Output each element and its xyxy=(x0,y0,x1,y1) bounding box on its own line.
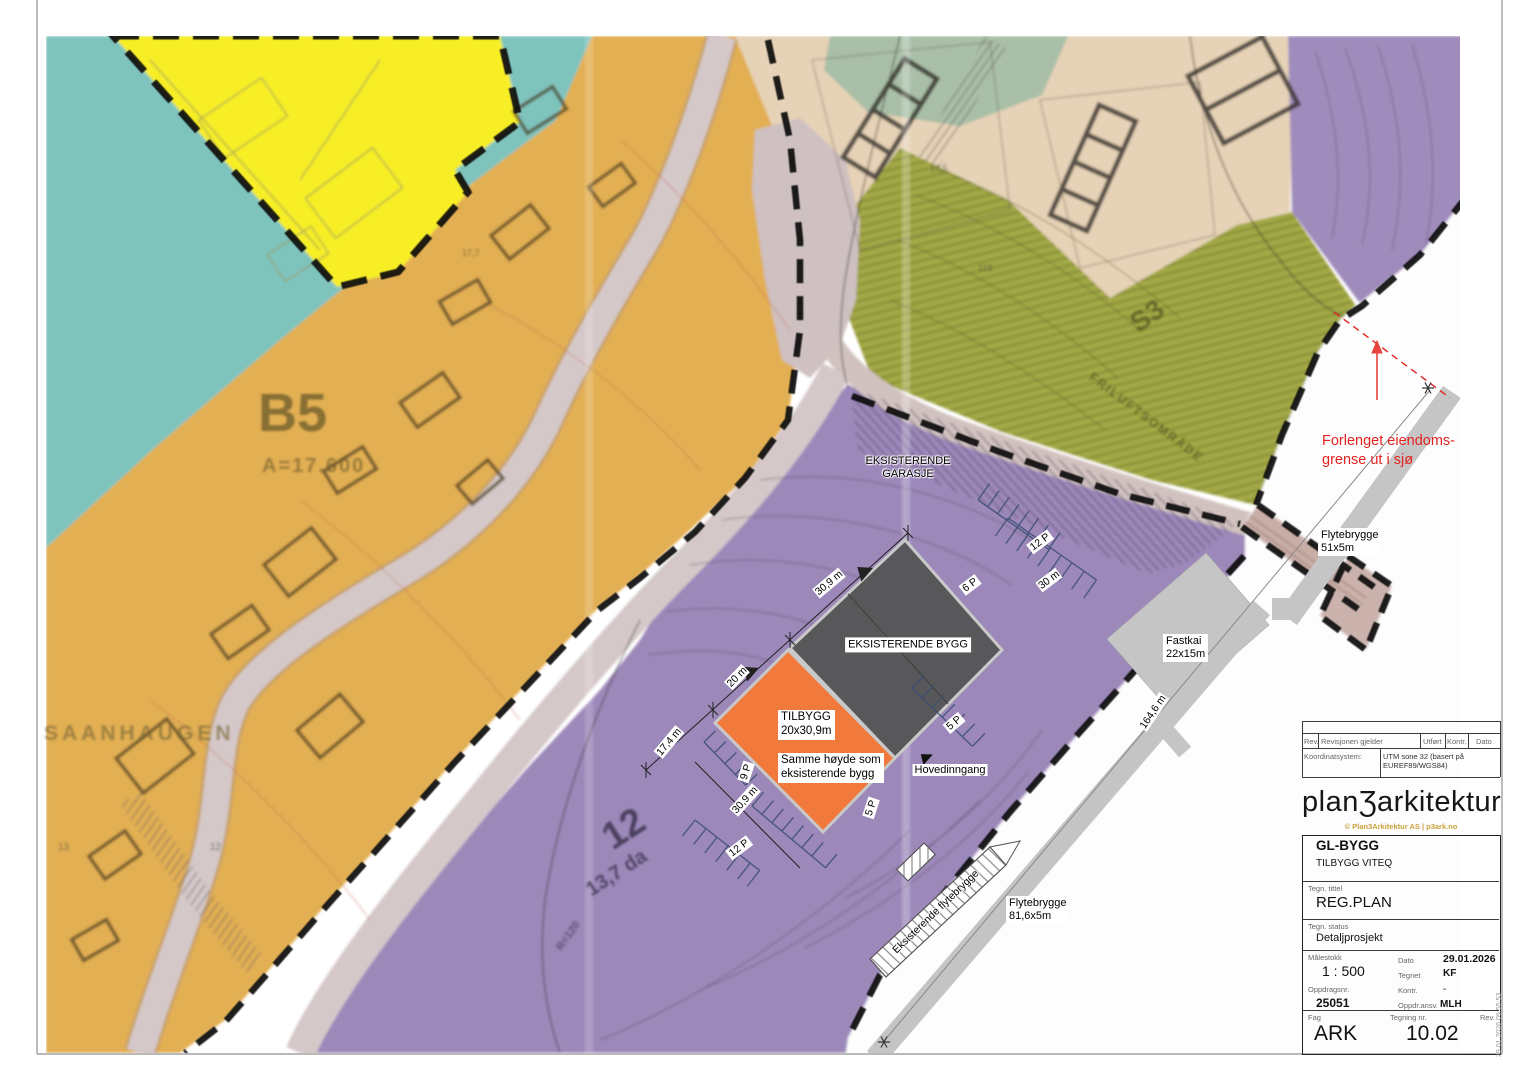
tb-tegn-status-label: Tegn. status xyxy=(1308,922,1348,931)
tb-rev2-label: Rev. xyxy=(1480,1013,1495,1022)
copyright-line: © Plan3Arkitektur AS | p3ark.no xyxy=(1302,822,1500,831)
tb-fag-label: Fag xyxy=(1308,1013,1321,1022)
tb-tegning-nr: 10.02 xyxy=(1406,1022,1459,1046)
tb-utfort-header: Utført xyxy=(1423,737,1442,746)
tb-oppdr-ansv: MLH xyxy=(1440,999,1462,1010)
plot-timestamp: 29.01.2026 09:55:53 xyxy=(1496,993,1503,1057)
tb-tegning-nr-label: Tegning nr. xyxy=(1390,1013,1427,1022)
tb-kontr2-label: Kontr. xyxy=(1398,986,1418,995)
tb-dato-value: 29.01.2026 xyxy=(1443,953,1496,965)
plan3arkitektur-logo: planƷarkitektur xyxy=(1302,786,1500,819)
tb-dato-header: Dato xyxy=(1476,737,1492,746)
tb-tegn-status: Detaljprosjekt xyxy=(1316,932,1383,944)
tb-kontr2: - xyxy=(1443,984,1446,995)
tb-revision-header: Revisjonen gjelder xyxy=(1321,737,1383,746)
tb-koordinatsystem-label: Koordinatsystem: xyxy=(1304,752,1362,761)
tb-oppdragsnr: 25051 xyxy=(1316,996,1349,1010)
tb-malestokk: 1 : 500 xyxy=(1322,963,1365,979)
tb-dato2-label: Dato xyxy=(1398,956,1414,965)
tb-kontr-header: Kontr. xyxy=(1447,737,1467,746)
tb-rev-header: Rev. xyxy=(1304,737,1319,746)
title-block: Rev. Revisjonen gjelder Utført Kontr. Da… xyxy=(0,0,1527,1080)
tb-oppdragsnr-label: Oppdragsnr. xyxy=(1308,985,1349,994)
tb-oppdr-ansv-label: Oppdr.ansv. xyxy=(1398,1001,1438,1010)
reguleringsplan-sheet: B5 A=17.600 SAANHAUGEN S3 FRILUFTSOMRÅDE… xyxy=(0,0,1527,1080)
tb-malestokk-label: Målestokk xyxy=(1308,953,1342,962)
tb-project: GL-BYGG xyxy=(1316,838,1379,853)
tb-tegn-tittel: REG.PLAN xyxy=(1316,894,1392,911)
tb-fag: ARK xyxy=(1314,1022,1357,1046)
tb-tegn-tittel-label: Tegn. tittel xyxy=(1308,884,1342,893)
tb-subproject: TILBYGG VITEQ xyxy=(1316,858,1392,869)
tb-tegnet: KF xyxy=(1443,968,1456,979)
tb-tegnet-label: Tegnet xyxy=(1398,971,1421,980)
tb-koordinatsystem-value: UTM sone 32 (basert på EUREF89/WGS84) xyxy=(1383,752,1464,771)
